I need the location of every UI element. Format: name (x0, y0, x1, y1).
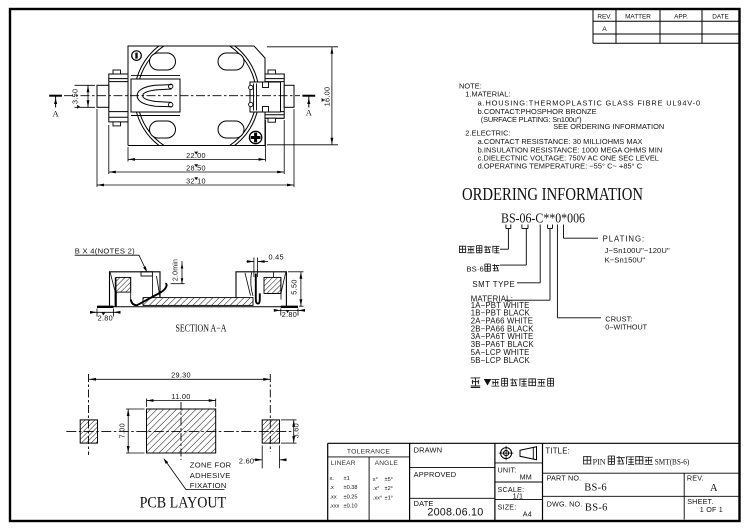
svg-text:A: A (602, 26, 607, 33)
svg-text:7.00: 7.00 (117, 423, 126, 438)
svg-text:PCB LAYOUT: PCB LAYOUT (140, 494, 227, 511)
svg-text:A: A (53, 109, 60, 119)
svg-text:A: A (306, 108, 313, 118)
svg-text:2.80: 2.80 (282, 310, 297, 319)
svg-text:3.60: 3.60 (292, 423, 301, 438)
svg-text:ZONE FOR: ZONE FOR (190, 460, 232, 469)
svg-text:SEE ORDERING INFORMATION: SEE ORDERING INFORMATION (553, 122, 664, 131)
svg-text:x.: x. (330, 476, 335, 482)
svg-text:29.30: 29.30 (171, 371, 191, 380)
svg-text:DWG. NO.: DWG. NO. (547, 500, 583, 509)
svg-text:±0.25: ±0.25 (344, 494, 358, 500)
svg-text:BS-6: BS-6 (584, 483, 607, 494)
svg-text:.x°: .x° (373, 486, 380, 492)
svg-text:BS·6: BS·6 (467, 264, 484, 273)
svg-text:±2°: ±2° (385, 486, 393, 492)
svg-text:1 OF 1: 1 OF 1 (700, 505, 723, 514)
svg-text:SMT TYPE: SMT TYPE (472, 280, 514, 289)
svg-text:ANGLE: ANGLE (375, 460, 399, 467)
svg-text:±1°: ±1° (385, 495, 393, 501)
svg-text:5.50: 5.50 (289, 279, 298, 294)
svg-text:5B−LCP BLACK: 5B−LCP BLACK (471, 356, 531, 365)
svg-text:BS-06-C**0*006: BS-06-C**0*006 (501, 211, 585, 226)
svg-text:A4: A4 (523, 510, 532, 519)
svg-text:x°: x° (373, 477, 378, 483)
svg-text:APP.: APP. (674, 13, 688, 20)
svg-text:SECTION A−A: SECTION A−A (176, 324, 227, 335)
svg-text:UNIT:: UNIT: (498, 466, 517, 475)
svg-text:PLATING:: PLATING: (603, 235, 645, 244)
svg-text:DATE: DATE (712, 13, 729, 20)
svg-text:BS-6: BS-6 (585, 503, 608, 514)
svg-text:REV.: REV. (597, 13, 612, 20)
svg-text:2.0min: 2.0min (172, 259, 179, 281)
svg-text:2.80: 2.80 (98, 313, 113, 322)
svg-text:TOLERANCE: TOLERANCE (347, 449, 390, 456)
svg-text:11.00: 11.00 (171, 392, 190, 401)
svg-text:0−WITHOUT: 0−WITHOUT (605, 322, 647, 331)
svg-text:MATTER: MATTER (625, 13, 651, 20)
svg-text:.xxx: .xxx (330, 504, 340, 510)
svg-text:B X 4(NOTES 2): B X 4(NOTES 2) (75, 246, 135, 255)
svg-text:PIN: PIN (593, 456, 607, 466)
svg-text:3.50: 3.50 (71, 89, 80, 104)
svg-text:±0.10: ±0.10 (344, 504, 358, 510)
svg-text:.xx°: .xx° (373, 495, 382, 501)
svg-text:LINEAR: LINEAR (331, 460, 356, 467)
svg-text:±5°: ±5° (385, 477, 393, 483)
svg-text:FIXATION: FIXATION (190, 481, 227, 490)
svg-text:ADHESIVE: ADHESIVE (190, 471, 231, 480)
svg-text:K−Sn150U": K−Sn150U" (605, 256, 646, 265)
svg-text:A: A (710, 483, 718, 494)
svg-text:±0.38: ±0.38 (344, 485, 358, 491)
svg-text:2.60: 2.60 (239, 456, 254, 465)
svg-text:.xx: .xx (330, 494, 337, 500)
svg-text:16.00: 16.00 (322, 87, 331, 107)
svg-text:2008.06.10: 2008.06.10 (427, 506, 483, 518)
svg-text:MM: MM (520, 473, 532, 482)
svg-text:.x: .x (330, 485, 335, 491)
svg-text:REV.: REV. (687, 474, 704, 483)
svg-text:SMT(BS-6): SMT(BS-6) (655, 456, 690, 466)
svg-text:±1: ±1 (344, 476, 350, 482)
svg-text:SIZE:: SIZE: (498, 503, 517, 512)
svg-text:1/1: 1/1 (513, 492, 524, 501)
svg-text:d.OPERATING TEMPERATURE: −55°: d.OPERATING TEMPERATURE: −55° C~ +85° C (478, 161, 643, 170)
svg-text:ORDERING INFORMATION: ORDERING INFORMATION (462, 184, 643, 204)
svg-text:DRAWN: DRAWN (414, 446, 443, 455)
svg-text:TITLE:: TITLE: (545, 447, 570, 456)
svg-text:0.45: 0.45 (269, 253, 284, 262)
svg-text:PART NO.: PART NO. (547, 474, 582, 483)
svg-text:J−Sn100U"~120U": J−Sn100U"~120U" (605, 246, 670, 255)
svg-text:1.MATERIAL:: 1.MATERIAL: (465, 90, 510, 99)
svg-text:APPROVED: APPROVED (414, 470, 457, 479)
